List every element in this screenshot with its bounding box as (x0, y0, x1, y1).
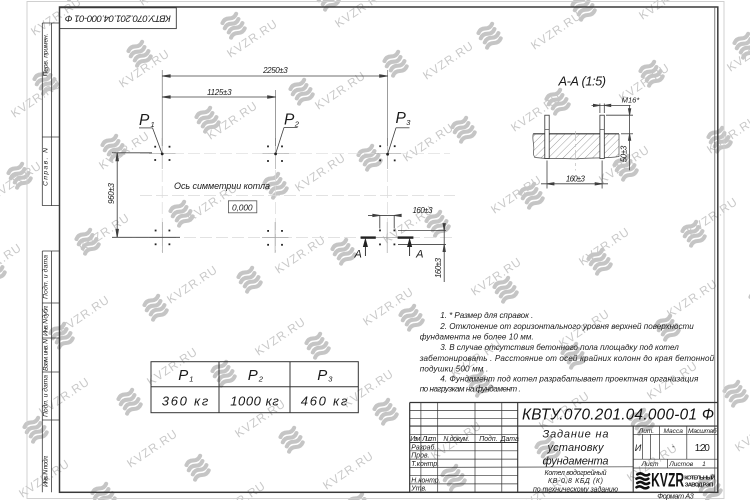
svg-text:Инв. N подл.: Инв. N подл. (41, 455, 49, 487)
svg-text:И: И (635, 443, 642, 453)
svg-text:2: 2 (294, 119, 300, 128)
svg-text:КВ-0,8 КБД (К): КВ-0,8 КБД (К) (548, 478, 603, 485)
svg-text:Подп. и дата: Подп. и дата (41, 375, 49, 417)
svg-text:KVZR.RU: KVZR.RU (252, 314, 308, 358)
svg-text:Т.контр.: Т.контр. (411, 461, 439, 468)
svg-text:Лист: Лист (641, 461, 659, 468)
svg-text:по техническому заданию: по техническому заданию (533, 485, 619, 493)
svg-text:KVZR.RU: KVZR.RU (116, 46, 172, 90)
svg-text:Лист: Лист (421, 436, 436, 443)
svg-text:Задание на: Задание на (543, 429, 609, 441)
svg-text:1. * Размер для справок .: 1. * Размер для справок . (440, 311, 533, 320)
svg-text:3: 3 (406, 118, 411, 127)
svg-text:Подп. и дата: Подп. и дата (41, 255, 49, 299)
svg-text:1000 кг: 1000 кг (230, 394, 279, 409)
svg-text:P: P (317, 367, 327, 384)
svg-text:Изм: Изм (410, 436, 420, 443)
svg-text:P: P (178, 367, 188, 384)
svg-text:KVZR.RU: KVZR.RU (332, 0, 388, 30)
svg-text:KVZR.RU: KVZR.RU (664, 276, 720, 320)
svg-text:160±3: 160±3 (434, 257, 443, 278)
svg-text:установку: установку (547, 442, 606, 454)
svg-text:забетонировать . Расстояние: забетонировать . Расстояние от осей край… (419, 354, 715, 363)
svg-text:Формат А3: Формат А3 (657, 491, 694, 500)
svg-text:Котел водогрейный: Котел водогрейный (545, 469, 607, 477)
svg-text:KVZR.RU: KVZR.RU (272, 232, 328, 276)
svg-text:Листов: Листов (668, 461, 694, 468)
svg-text:Н.контр.: Н.контр. (411, 477, 440, 484)
svg-text:N докум.: N докум. (443, 435, 469, 443)
svg-text:Перв. примен.: Перв. примен. (42, 33, 49, 76)
svg-text:подушки 500 мм .: подушки 500 мм . (420, 364, 489, 373)
svg-text:Разраб.: Разраб. (411, 443, 436, 451)
svg-text:по нагрузкам на фундамент .: по нагрузкам на фундамент . (420, 385, 521, 394)
svg-text:1: 1 (189, 375, 193, 384)
svg-text:2. Отклонение от горизонтал: 2. Отклонение от горизонтального уровня … (439, 322, 694, 331)
svg-text:160±3: 160±3 (413, 206, 434, 215)
svg-text:КОТЕЛЬНЫЙ: КОТЕЛЬНЫЙ (684, 473, 715, 481)
svg-text:Подп.: Подп. (479, 435, 497, 443)
svg-text:360 кг: 360 кг (162, 394, 209, 409)
svg-text:KVZR.RU: KVZR.RU (528, 8, 584, 52)
svg-text:KVZR: KVZR (651, 470, 684, 492)
svg-text:фундамента не более 10 м: фундамента не более 10 мм. (420, 332, 534, 341)
svg-text:160±3: 160±3 (566, 175, 586, 184)
svg-text:4. Фундамент под котел ра: 4. Фундамент под котел разрабатывает про… (440, 374, 699, 383)
svg-text:KVZR.RU: KVZR.RU (488, 172, 544, 216)
svg-text:Утв.: Утв. (410, 485, 427, 492)
svg-text:3. В случае отсутствия бет: 3. В случае отсутствия бетонного пола пл… (440, 343, 679, 352)
svg-text:М16*: М16* (622, 96, 641, 105)
svg-text:А: А (354, 249, 362, 261)
svg-text:Масса: Масса (663, 428, 683, 435)
svg-text:Инв. N дубл.: Инв. N дубл. (41, 305, 49, 336)
svg-text:KVZR.RU: KVZR.RU (420, 38, 476, 82)
svg-text:1: 1 (702, 461, 706, 468)
svg-text:фундамента: фундамента (543, 456, 609, 468)
svg-text:Справ. N: Справ. N (42, 148, 49, 186)
svg-text:Ось симметрии котла: Ось симметрии котла (174, 181, 270, 191)
svg-text:А: А (415, 249, 423, 261)
svg-text:Дата: Дата (500, 436, 519, 443)
svg-text:Лит.: Лит. (638, 428, 655, 435)
svg-text:KVZR.RU: KVZR.RU (636, 0, 692, 22)
svg-text:KVZR.RU: KVZR.RU (732, 410, 750, 454)
svg-text:Масштаб: Масштаб (688, 427, 717, 435)
svg-text:Пров.: Пров. (411, 453, 429, 460)
svg-text:3: 3 (328, 375, 333, 384)
svg-text:KVZR.RU: KVZR.RU (164, 262, 220, 306)
svg-text:КВТУ.070.201.04.000-01 Ф: КВТУ.070.201.04.000-01 Ф (522, 406, 714, 423)
svg-text:1:20: 1:20 (695, 443, 711, 454)
svg-text:1125±3: 1125±3 (207, 88, 232, 97)
svg-text:50±3: 50±3 (619, 145, 628, 162)
svg-text:KVZR.RU: KVZR.RU (320, 448, 376, 492)
svg-text:2: 2 (258, 375, 264, 384)
svg-text:А-А (1:5): А-А (1:5) (558, 73, 607, 88)
svg-text:2250±3: 2250±3 (262, 66, 288, 75)
svg-text:KVZR.RU: KVZR.RU (124, 426, 180, 470)
svg-text:P: P (248, 367, 258, 384)
svg-text:KVZR.RU: KVZR.RU (0, 322, 4, 366)
svg-text:P: P (139, 112, 150, 129)
svg-text:960±3: 960±3 (107, 182, 116, 204)
svg-text:P: P (284, 111, 295, 128)
svg-text:ЗАВОД РЭП: ЗАВОД РЭП (685, 482, 714, 488)
svg-text:0,000: 0,000 (232, 202, 253, 212)
svg-text:КВТУ.070.201.04.000-01 Ф: КВТУ.070.201.04.000-01 Ф (65, 13, 171, 24)
svg-text:KVZR.RU: KVZR.RU (212, 478, 268, 500)
svg-text:-: - (672, 441, 675, 451)
svg-text:460 кг: 460 кг (301, 394, 348, 409)
svg-text:KVZR.RU: KVZR.RU (292, 150, 348, 194)
svg-text:P: P (396, 110, 407, 127)
svg-text:KVZR.RU: KVZR.RU (0, 240, 24, 284)
svg-text:KVZR.RU: KVZR.RU (312, 68, 368, 112)
svg-text:Взам. инв. N: Взам. инв. N (42, 339, 49, 371)
